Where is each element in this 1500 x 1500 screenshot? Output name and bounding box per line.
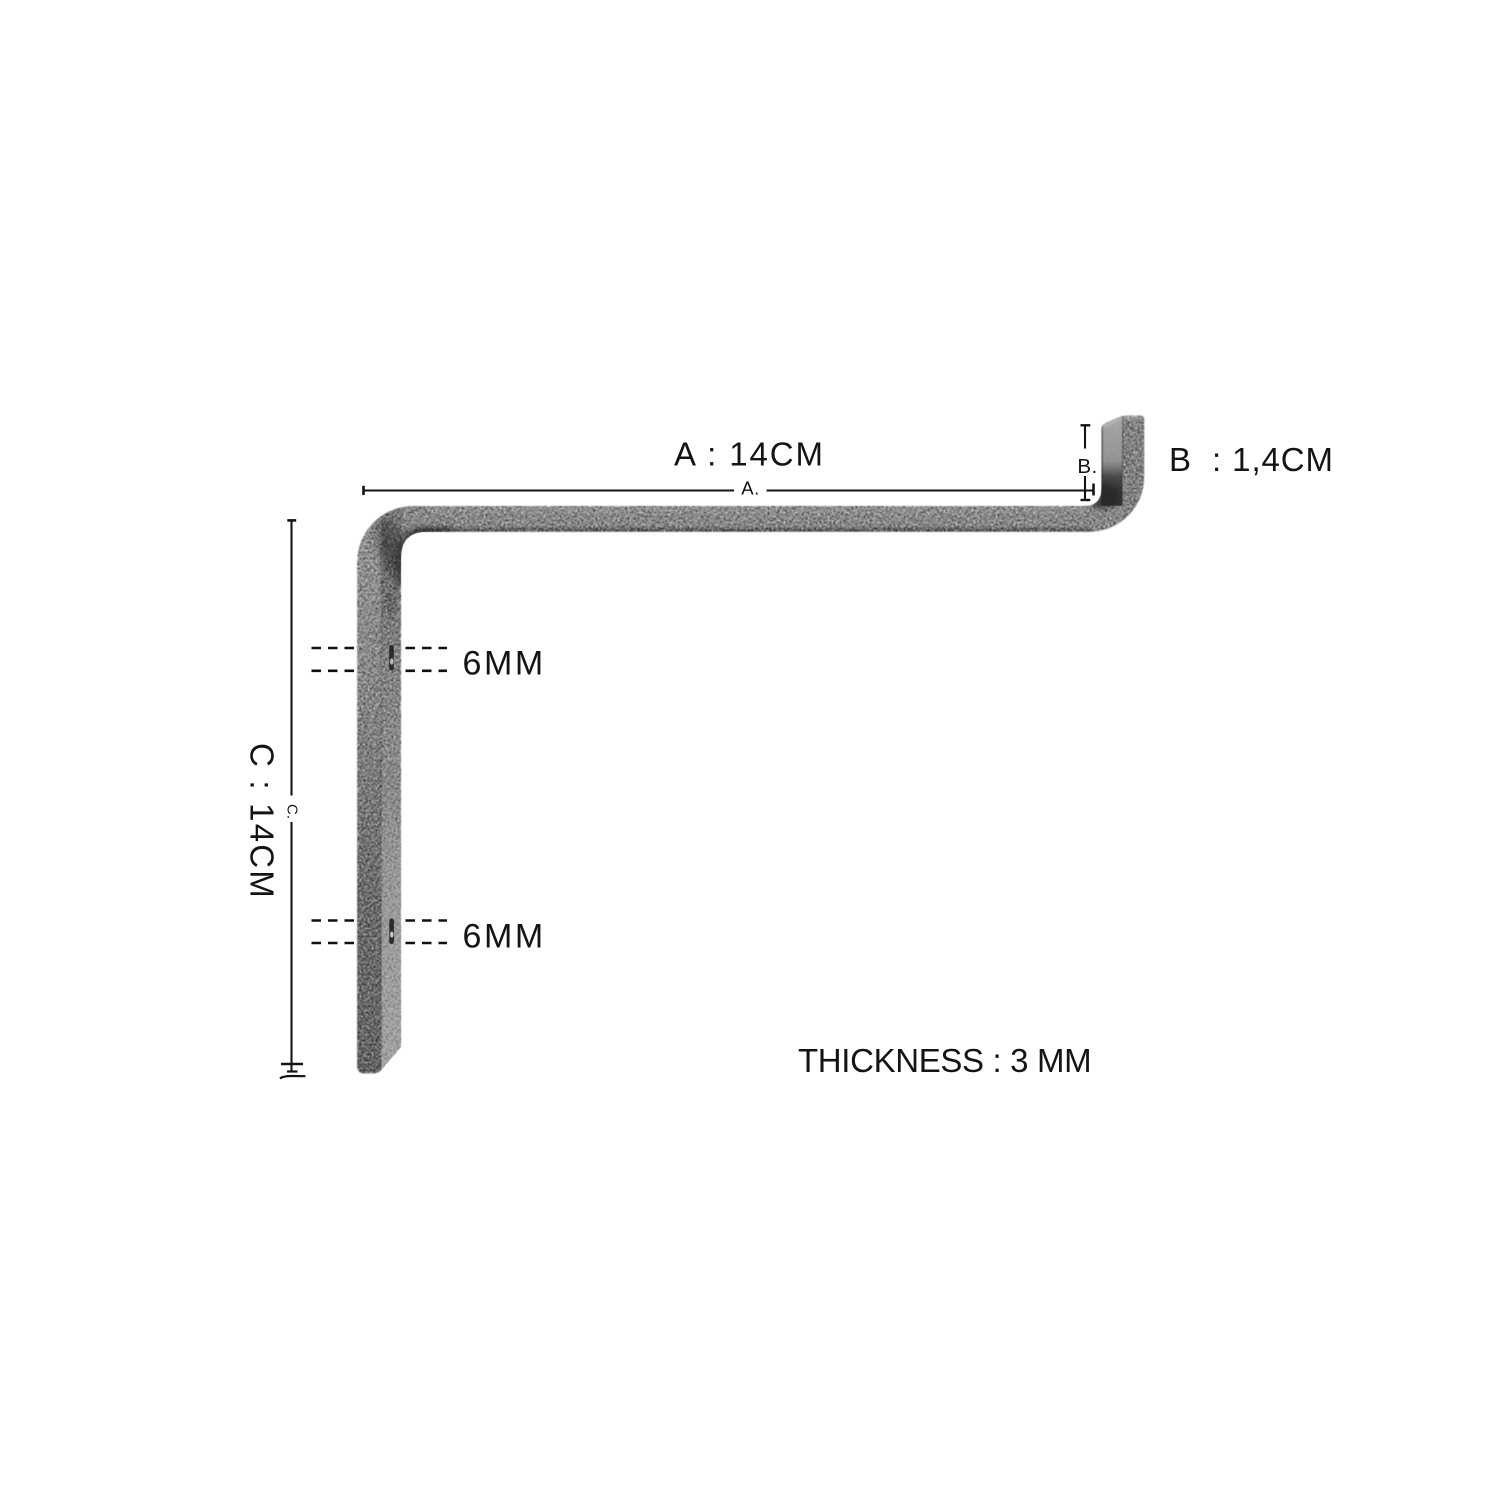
svg-text:C : 14CM: C : 14CM [244,743,281,900]
svg-text:A : 14CM: A : 14CM [674,435,825,472]
svg-text:6MM: 6MM [463,645,546,683]
svg-text:C.: C. [284,804,301,819]
svg-text:THICKNESS : 3 MM: THICKNESS : 3 MM [798,1042,1091,1079]
svg-text:B : 1,4CM: B : 1,4CM [1169,441,1334,478]
svg-text:B.: B. [1077,455,1097,478]
svg-text:6MM: 6MM [463,918,546,956]
svg-text:A.: A. [741,477,759,498]
